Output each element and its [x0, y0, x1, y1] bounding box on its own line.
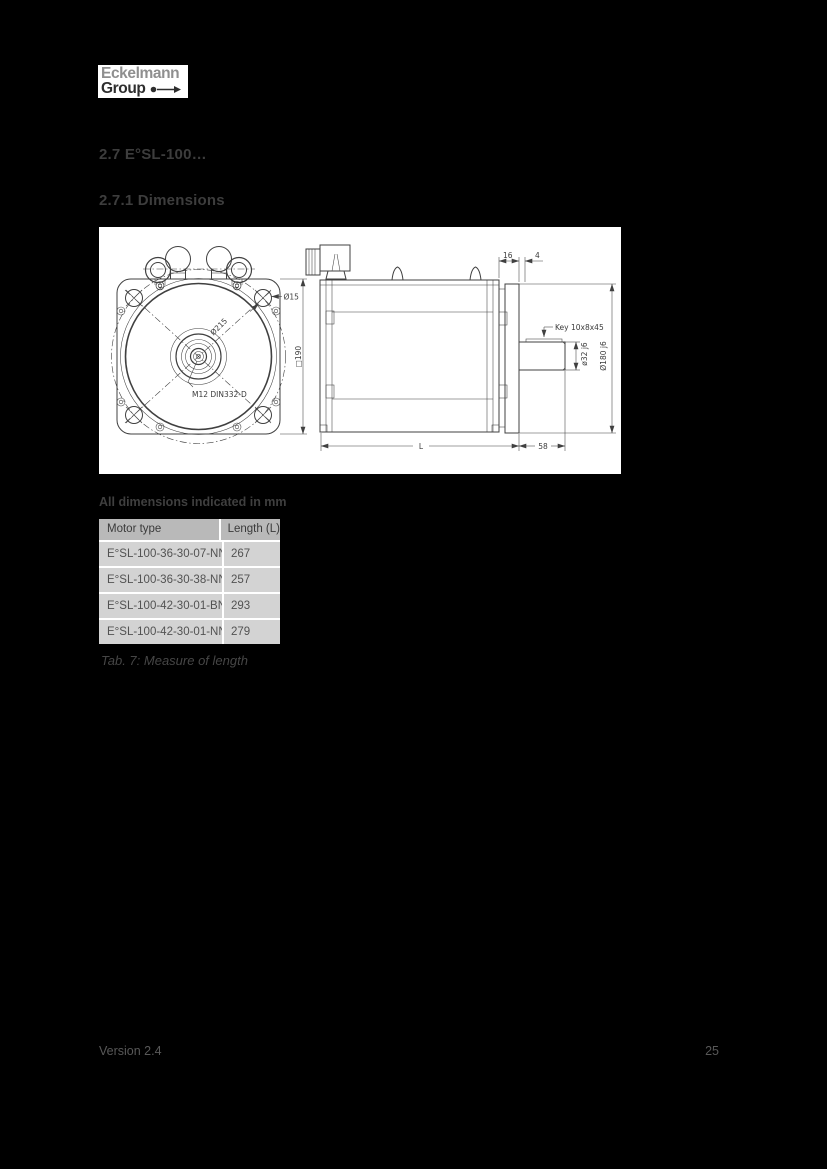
- label-dia32: ø32 j6: [580, 342, 589, 366]
- eckelmann-logo: Eckelmann Group: [98, 65, 188, 98]
- logo-group-text: Group: [101, 81, 146, 96]
- table-row: E°SL-100-36-30-07-NN0 267: [99, 540, 280, 566]
- side-view: 16 4 Ø180 j6 ø32 j6 Key 10x8x45: [306, 245, 616, 451]
- label-dim58: 58: [538, 442, 548, 451]
- lifting-bolt: [392, 267, 403, 280]
- length-cell: 267: [224, 542, 280, 566]
- table-row: E°SL-100-42-30-01-BN0 293: [99, 592, 280, 618]
- label-length: L: [419, 442, 424, 451]
- logo-arrow-icon: [150, 85, 182, 94]
- dimension-drawing: □190 Ø15 Ø215 M12 DIN332-D: [99, 227, 621, 474]
- subsection-heading: 2.7.1 Dimensions: [99, 192, 225, 209]
- label-dia180: Ø180 j6: [599, 341, 608, 371]
- label-dim4: 4: [535, 251, 540, 260]
- mounting-hole: [126, 290, 143, 307]
- motor-type-cell: E°SL-100-42-30-01-BN0: [99, 594, 224, 618]
- label-dia215: Ø215: [208, 316, 229, 337]
- length-cell: 279: [224, 620, 280, 644]
- length-table: Motor type Length (L) E°SL-100-36-30-07-…: [99, 519, 280, 644]
- column-header-length: Length (L): [221, 519, 280, 540]
- table-row: E°SL-100-36-30-38-NN3 257: [99, 566, 280, 592]
- footer-version: Version 2.4: [99, 1044, 162, 1058]
- flange: [505, 284, 519, 433]
- table-header-row: Motor type Length (L): [99, 519, 280, 540]
- lifting-bolt: [470, 267, 481, 280]
- motor-type-cell: E°SL-100-36-30-38-NN3: [99, 568, 224, 592]
- table-row: E°SL-100-42-30-01-NN0 279: [99, 618, 280, 644]
- length-cell: 293: [224, 594, 280, 618]
- column-header-motor-type: Motor type: [99, 519, 221, 540]
- mounting-hole: [255, 290, 272, 307]
- table-caption: Tab. 7: Measure of length: [101, 653, 248, 668]
- mounting-hole: [126, 407, 143, 424]
- section-heading: 2.7 E°SL-100…: [99, 146, 207, 163]
- connector-elbow: [306, 245, 350, 279]
- label-m12: M12 DIN332-D: [192, 390, 247, 399]
- front-view: □190 Ø15 Ø215 M12 DIN332-D: [112, 247, 308, 444]
- motor-type-cell: E°SL-100-42-30-01-NN0: [99, 620, 224, 644]
- document-page: Eckelmann Group 2.7 E°SL-100… 2.7.1 Dime…: [0, 0, 827, 1169]
- label-dim16: 16: [503, 251, 513, 260]
- footer-page-number: 25: [705, 1044, 719, 1058]
- logo-brand-name: Eckelmann: [101, 66, 188, 81]
- motor-type-cell: E°SL-100-36-30-07-NN0: [99, 542, 224, 566]
- label-key: Key 10x8x45: [555, 323, 604, 332]
- label-dia15: Ø15: [284, 293, 300, 302]
- label-square190: □190: [294, 346, 303, 368]
- mounting-hole: [255, 407, 272, 424]
- dimensions-note: All dimensions indicated in mm: [99, 495, 287, 509]
- shaft: [519, 342, 565, 370]
- motor-dimension-svg: □190 Ø15 Ø215 M12 DIN332-D: [99, 227, 621, 474]
- length-cell: 257: [224, 568, 280, 592]
